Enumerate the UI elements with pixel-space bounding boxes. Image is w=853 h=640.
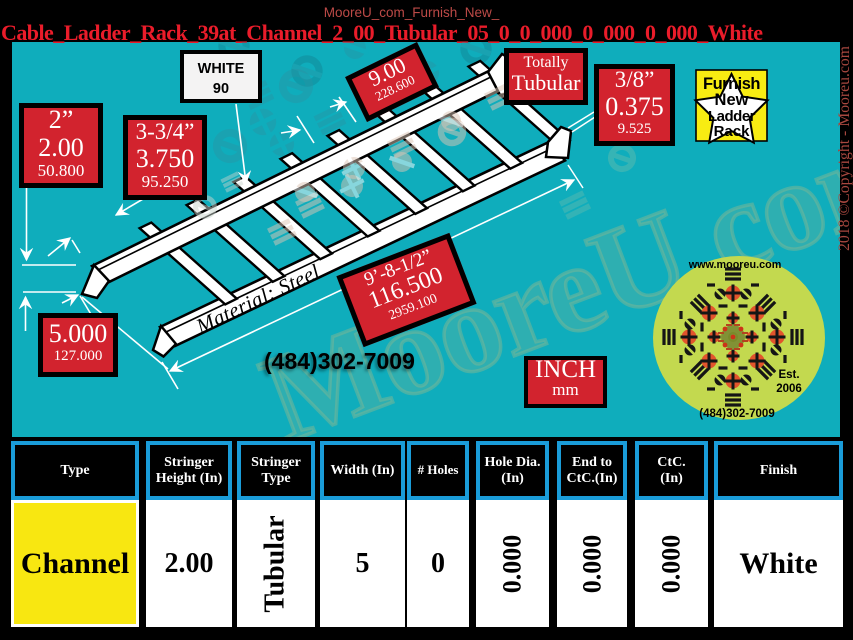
svg-text:Rack: Rack <box>714 123 751 140</box>
svg-text:(484)302-7009: (484)302-7009 <box>699 408 774 420</box>
svg-text:2006: 2006 <box>776 383 802 395</box>
svg-text:2018 ©Copyright - Mooreu.com: 2018 ©Copyright - Mooreu.com <box>836 46 853 251</box>
svg-text:Est.: Est. <box>778 369 799 381</box>
svg-text:New: New <box>715 91 749 109</box>
